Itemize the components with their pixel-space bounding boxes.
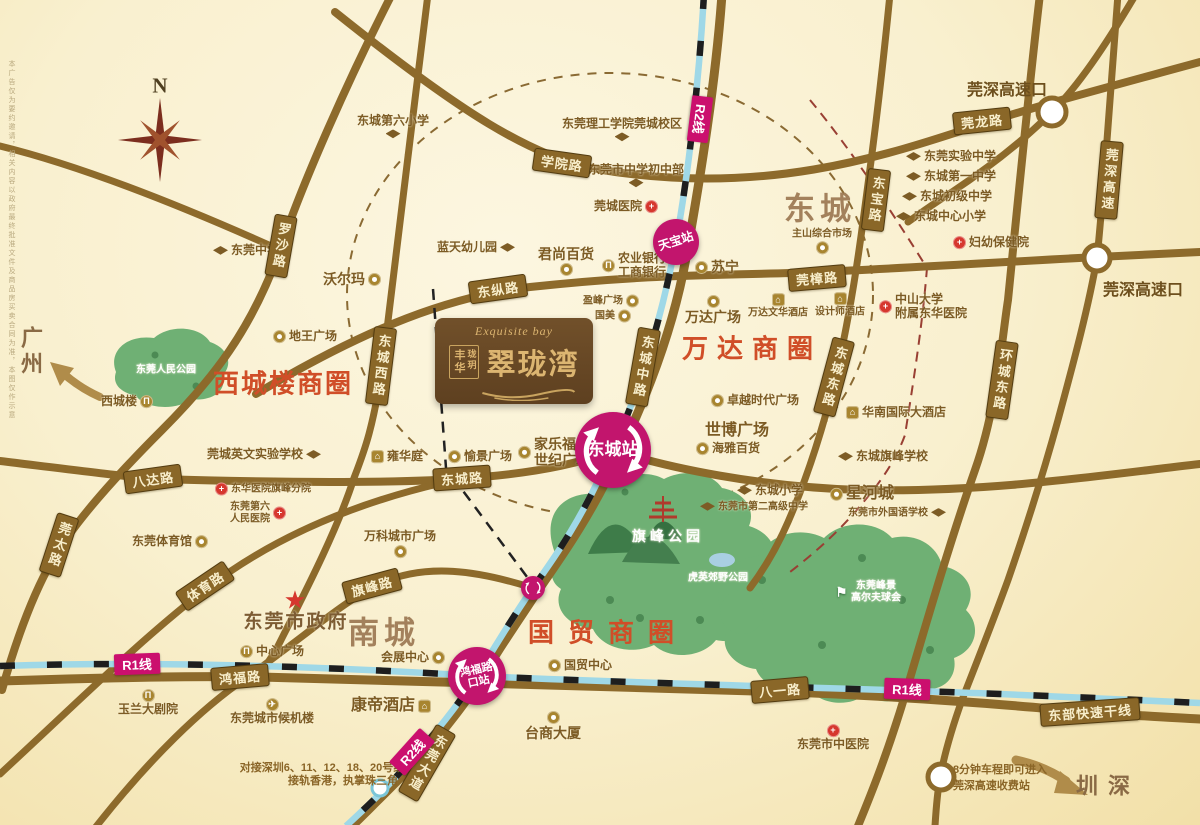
poi-label: Π玉兰大剧院 (118, 689, 178, 717)
poi-label: 康帝酒店⌂ (351, 697, 431, 715)
poi-text: 西城楼 (101, 395, 137, 409)
school-icon (902, 192, 917, 202)
poi-text: 莞城英文实验学校 (207, 448, 303, 462)
poi-text: 主山综合市场 (792, 228, 852, 240)
poi-text: 虎英郊野公园 (688, 572, 748, 584)
bank-icon: Π (602, 260, 615, 273)
poi-text: 海雅百货 (712, 442, 760, 456)
poi-label: ⌂华南国际大酒店 (846, 406, 946, 420)
shop-icon (432, 651, 445, 664)
poi-label: ⌂设计师酒店 (815, 292, 865, 318)
poi-label: 东城第六小学 (357, 115, 429, 140)
poi-label: +中山大学 附属东华医院 (879, 293, 967, 321)
shop-icon (695, 261, 708, 274)
poi-text: 君尚百货 (538, 246, 594, 262)
poi-text: 世博广场 (705, 422, 769, 440)
shop-icon (707, 295, 720, 308)
poi-label: ⌂万达文华酒店 (748, 293, 808, 319)
school-icon (306, 450, 321, 460)
poi-label: 万达广场 (685, 295, 741, 325)
road-feeder-topleft (0, 146, 280, 250)
poi-text: 盈峰广场 (583, 295, 623, 307)
poi-text: 雍华庭 (387, 450, 423, 464)
poi-text: 东莞市第二高级中学 (718, 501, 808, 513)
station-ring-icon (524, 579, 542, 597)
poi-label: 东城第一中学 (906, 170, 996, 184)
poi-text: 东莞城市候机楼 (230, 712, 314, 726)
poi-label: 台商大厦 (525, 711, 581, 741)
poi-label: 东莞理工学院莞城校区 (562, 118, 682, 143)
highway-exit-label: 莞深高速口 (1103, 276, 1183, 300)
poi-text: 东城中心小学 (914, 210, 986, 224)
poi-label: 东莞第六 人民医院+ (230, 502, 286, 525)
bank-icon: Π (141, 689, 154, 702)
poi-label: +东莞市中医院 (797, 724, 869, 752)
poi-label: 君尚百货 (538, 246, 594, 276)
poi-label: 东莞人民公园 (136, 364, 196, 376)
poi-text: 中山大学 附属东华医院 (895, 293, 967, 321)
shop-icon (626, 295, 639, 308)
school-icon (906, 152, 921, 162)
poi-label: 东莞实验中学 (906, 150, 996, 164)
poi-label: 万科城市广场 (364, 530, 436, 558)
shop-icon (273, 330, 286, 343)
metro-line-label: R1线 (884, 678, 930, 701)
poi-label: ✈东莞城市候机楼 (230, 698, 314, 726)
business-circle-label: 国贸商圈 (528, 613, 688, 650)
poi-text: 设计师酒店 (815, 306, 865, 318)
road-label: 东城路 (432, 465, 491, 492)
gym-icon (195, 535, 208, 548)
project-logo: Exquisite bay 丰华 珑玥 翠珑湾 (435, 318, 593, 404)
logo-developer-seal: 丰华 珑玥 (449, 345, 480, 379)
hotel-icon: ⌂ (846, 406, 859, 419)
star-icon: ★ (285, 591, 307, 611)
shop-icon (393, 545, 406, 558)
shop-icon (548, 659, 561, 672)
hospital-icon: + (645, 200, 658, 213)
shop-icon (448, 450, 461, 463)
poi-label: 沃尔玛 (323, 271, 381, 287)
bank-icon: Π (240, 645, 253, 658)
logo-seal-col: 珑玥 (466, 349, 475, 375)
poi-text: 星河城 (846, 485, 894, 503)
hotel-icon: ⌂ (371, 450, 384, 463)
hospital-icon: + (273, 507, 286, 520)
disclaimer-text: 本广告仅为要约邀请，相关内容以政府最终批准文件及商品房买卖合同为准，本图仅作示意 (6, 60, 16, 450)
poi-text: 东莞实验中学 (924, 150, 996, 164)
station-label: 天宝站 (657, 230, 695, 254)
poi-label: 蓝天幼儿园 (437, 241, 515, 255)
station-鸿福路口站: 鸿福路 口站 (448, 647, 506, 705)
poi-text: 台商大厦 (525, 725, 581, 741)
poi-text: 东莞理工学院莞城校区 (562, 118, 682, 132)
school-icon (385, 129, 400, 139)
shop-icon (518, 446, 531, 459)
school-icon (213, 246, 228, 256)
poi-label: 东莞体育馆 (132, 535, 208, 549)
guangzhou-arrow-icon (50, 362, 100, 397)
poi-label: 世博广场 (705, 422, 769, 440)
poi-text: 旗峰公园 (632, 528, 704, 544)
poi-label: 会展中心 (381, 651, 445, 665)
poi-label: 东城中心小学 (896, 210, 986, 224)
poi-label: 海雅百货 (696, 442, 760, 456)
hotel-icon: ⌂ (834, 292, 847, 305)
shop-icon (711, 394, 724, 407)
poi-text: 万达文华酒店 (748, 307, 808, 319)
poi-text: 东莞市政府 (243, 612, 348, 634)
school-icon (737, 486, 752, 496)
business-circle-label: 西城楼商圈 (213, 364, 353, 401)
poi-text: 妇幼保健院 (969, 236, 1029, 250)
hotel-icon: ⌂ (418, 699, 431, 712)
poi-label: +妇幼保健院 (953, 236, 1029, 250)
poi-label: 主山综合市场 (792, 228, 852, 254)
poi-text: 国美 (595, 310, 615, 322)
poi-label: ★东莞市政府 (243, 591, 348, 634)
poi-text: 东城旗峰学校 (856, 450, 928, 464)
shop-icon (618, 310, 631, 323)
hospital-icon: + (953, 236, 966, 249)
school-icon (700, 502, 715, 512)
district-label: 南城 (348, 608, 420, 653)
school-icon (614, 132, 629, 142)
compass-icon (118, 98, 202, 182)
poi-label: Π农业银行 工商银行 (602, 252, 666, 280)
hospital-icon: + (215, 483, 228, 496)
poi-text: 东莞第六 人民医院 (230, 502, 270, 525)
logo-script: Exquisite bay (435, 324, 593, 339)
logo-seal-col: 丰华 (453, 349, 465, 375)
school-icon (896, 212, 911, 222)
poi-label: 东莞市外国语学校 (848, 507, 946, 519)
poi-text: 沃尔玛 (323, 271, 365, 287)
poi-label: 国美 (595, 310, 631, 323)
poi-label: Π中心广场 (240, 645, 304, 659)
poi-text: 东华医院旗峰分院 (231, 483, 311, 495)
logo-wave-icon (480, 389, 576, 401)
station-东城站: 东城站 (575, 412, 651, 488)
poi-label: 星河城 (830, 485, 894, 503)
shop-icon (816, 241, 829, 254)
poi-label: 东城旗峰学校 (838, 450, 928, 464)
bank-icon: Π (140, 395, 153, 408)
poi-text: 苏宁 (711, 259, 739, 275)
poi-label: 东城小学 (737, 484, 803, 498)
poi-text: 地王广场 (289, 330, 337, 344)
poi-text: 康帝酒店 (351, 697, 415, 715)
shop-icon (547, 711, 560, 724)
map-note: 8分钟车程即可进入 莞深高速收费站 (953, 761, 1047, 793)
school-icon (931, 508, 946, 518)
map-note: 接轨香港，执掌珠三角 (288, 772, 398, 788)
business-circle-label: 万达商圈 (682, 329, 822, 366)
poi-label: 东莞市第二高级中学 (700, 501, 808, 513)
poi-label: 地王广场 (273, 330, 337, 344)
poi-text: 玉兰大剧院 (118, 703, 178, 717)
shop-icon (830, 487, 843, 500)
poi-text: 卓越时代广场 (727, 394, 799, 408)
highway-exit-label: 莞深高速口 (967, 76, 1047, 100)
city-label-shenzhen: 深圳 (1069, 774, 1133, 808)
poi-text: 中心广场 (256, 645, 304, 659)
poi-text: 东莞市外国语学校 (848, 507, 928, 519)
hospital-icon: + (879, 301, 892, 314)
poi-label: ⚑东莞峰景 高尔夫球会 (835, 581, 901, 604)
poi-label: 虎英郊野公园 (688, 572, 748, 584)
station-天宝站: 天宝站 (653, 219, 699, 265)
school-icon (500, 243, 515, 253)
poi-label: 西城楼Π (101, 395, 153, 409)
poi-label: 莞城英文实验学校 (207, 448, 321, 462)
plane-icon: ✈ (265, 698, 278, 711)
poi-text: 莞城医院 (594, 200, 642, 214)
poi-label: 东莞市中学初中部 (588, 164, 684, 189)
poi-text: 国贸中心 (564, 659, 612, 673)
hospital-icon: + (826, 724, 839, 737)
poi-text: 愉景广场 (464, 450, 512, 464)
hotel-icon: ⌂ (772, 293, 785, 306)
shop-icon (368, 273, 381, 286)
school-icon (838, 452, 853, 462)
poi-text: 万达广场 (685, 309, 741, 325)
poi-text: 万科城市广场 (364, 530, 436, 544)
metro-line-label: R1线 (114, 653, 160, 676)
station-interchange-icon (521, 576, 545, 600)
location-map: N Exquisite bay 丰华 珑玥 翠珑湾 本广告仅为要约邀请，相关内容… (0, 0, 1200, 825)
poi-label: +东华医院旗峰分院 (215, 483, 311, 496)
poi-label: 卓越时代广场 (711, 394, 799, 408)
poi-text: 东莞人民公园 (136, 364, 196, 376)
poi-text: 东莞峰景 高尔夫球会 (851, 581, 901, 604)
poi-text: 东城第六小学 (357, 115, 429, 129)
shop-icon (560, 263, 573, 276)
poi-text: 东城第一中学 (924, 170, 996, 184)
poi-label: 旗峰公园 (632, 528, 704, 544)
poi-label: 东城初级中学 (902, 190, 992, 204)
logo-project-name: 翠珑湾 (486, 341, 579, 383)
poi-text: 会展中心 (381, 651, 429, 665)
poi-text: 东莞市中医院 (797, 738, 869, 752)
district-label: 东城 (784, 184, 856, 229)
poi-label: 苏宁 (695, 259, 739, 275)
poi-text: 东莞市中学初中部 (588, 164, 684, 178)
poi-text: 蓝天幼儿园 (437, 241, 497, 255)
golf-icon: ⚑ (835, 586, 848, 599)
poi-label: 愉景广场 (448, 450, 512, 464)
city-label-guangzhou: 广州 (14, 326, 46, 378)
poi-label: 莞城医院+ (594, 200, 658, 214)
shop-icon (696, 442, 709, 455)
compass-north-label: N (152, 74, 167, 99)
school-icon (906, 172, 921, 182)
poi-label: ⌂雍华庭 (371, 450, 423, 464)
poi-label: 盈峰广场 (583, 295, 639, 308)
poi-label: 国贸中心 (548, 659, 612, 673)
poi-text: 东城初级中学 (920, 190, 992, 204)
poi-text: 东城小学 (755, 484, 803, 498)
station-label: 东城站 (588, 441, 639, 460)
poi-text: 东莞体育馆 (132, 535, 192, 549)
poi-text: 华南国际大酒店 (862, 406, 946, 420)
school-icon (628, 178, 643, 188)
